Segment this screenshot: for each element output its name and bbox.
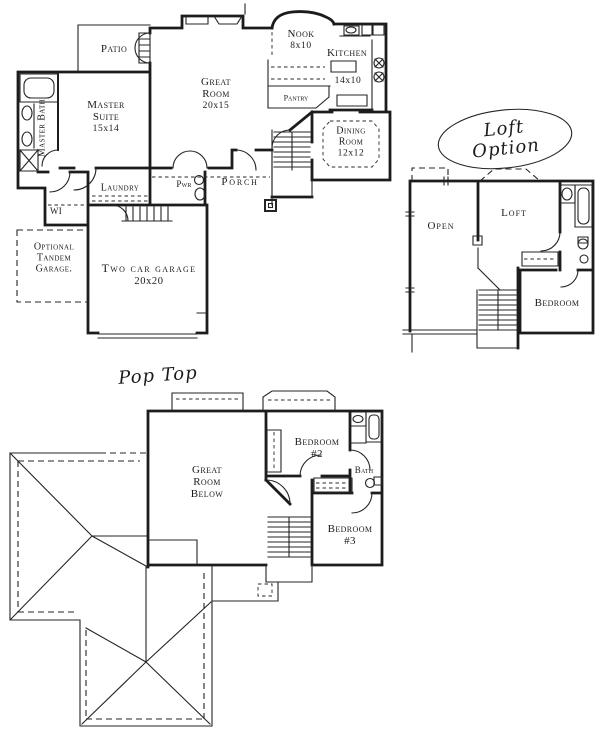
loft-linen-closet	[522, 252, 558, 266]
label-master-bath: Master Bath	[37, 99, 48, 157]
tub	[578, 188, 589, 224]
dims-nook: 8x10	[288, 41, 315, 51]
label-loft: Loft	[501, 207, 527, 219]
window-bays	[172, 391, 335, 411]
label-powder-room: Pwr	[176, 180, 191, 190]
kitchen-sink	[346, 27, 356, 33]
label-porch: Porch	[221, 176, 258, 188]
label-optional-garage: Optional Tandem Garage.	[34, 242, 74, 275]
toilet	[366, 479, 375, 488]
loft-bath-fixtures	[541, 185, 592, 287]
label-dining-room: Dining Room 12x12	[336, 114, 365, 169]
pop-top-plan	[148, 391, 382, 582]
shower	[20, 150, 38, 171]
poptop-bath-fixtures	[350, 412, 382, 488]
powder-fixtures	[195, 176, 206, 201]
toilet	[578, 239, 588, 249]
label-great-room-below: Great Room Below	[191, 464, 223, 500]
master-tub	[24, 78, 54, 98]
patio-french-doors	[135, 33, 150, 63]
toilet	[195, 188, 205, 200]
window-ticks	[406, 177, 448, 292]
label-open: Open	[427, 220, 454, 232]
garage-door	[98, 313, 207, 338]
label-great-room: Great Room 20x15	[201, 64, 231, 124]
porch-post	[265, 200, 276, 211]
kitchen-island	[331, 61, 356, 72]
stairs-loft	[477, 290, 518, 348]
dims-master-suite: 15x14	[87, 124, 125, 134]
label-laundry: Laundry	[101, 183, 139, 194]
tub	[369, 415, 379, 439]
label-bedroom-3: Bedroom #3	[328, 523, 373, 547]
post-footing	[258, 584, 272, 596]
great-room-notch	[150, 540, 197, 565]
pop-dashed-outline	[412, 168, 540, 181]
garage-steps	[112, 205, 172, 221]
sink	[562, 188, 572, 200]
laundry-appliances	[92, 196, 148, 201]
dims-great-room: 20x15	[201, 101, 231, 111]
floor-plan-sheet: Patio Master Suite 15x14 Master Bath Gre…	[0, 0, 600, 736]
label-bath: Bath	[355, 466, 373, 476]
label-nook: Nook 8x10	[288, 16, 315, 64]
stairs-poptop	[266, 517, 312, 582]
label-pantry: Pantry	[284, 95, 309, 104]
label-two-car-garage: Two car garage 20x20	[102, 249, 197, 301]
bedroom2-closet	[267, 430, 281, 472]
sink	[353, 416, 363, 423]
label-walk-in-closet: WI	[50, 207, 62, 217]
sink	[22, 106, 32, 120]
hall-closet	[314, 478, 352, 492]
dims-dining-room: 12x12	[336, 148, 365, 158]
sink	[22, 132, 32, 146]
label-master-suite: Master Suite 15x14	[87, 87, 125, 147]
label-bedroom-2: Bedroom #2	[295, 436, 340, 460]
label-patio: Patio	[101, 43, 127, 55]
roof-plan	[10, 453, 278, 726]
label-loft-bedroom: Bedroom	[535, 297, 580, 309]
dims-two-car-garage: 20x20	[102, 276, 197, 288]
dims-kitchen: 14x10	[335, 76, 362, 86]
stairs-main	[272, 130, 312, 197]
kitchen-fixtures	[331, 25, 384, 110]
label-kitchen: Kitchen	[327, 47, 367, 59]
